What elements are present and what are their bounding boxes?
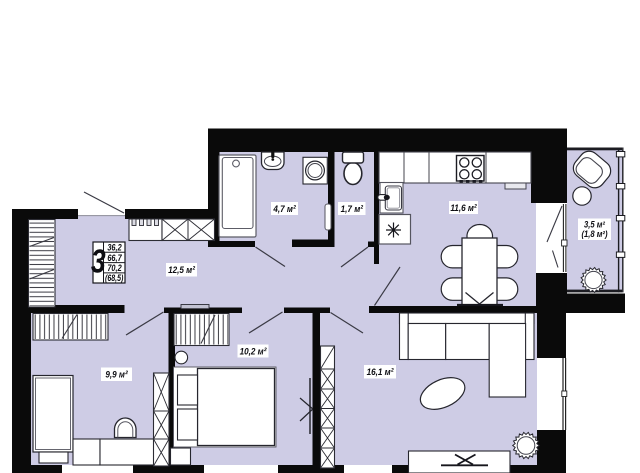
svg-text:16,1 м²: 16,1 м² bbox=[367, 366, 395, 377]
svg-text:(1,8 м²): (1,8 м²) bbox=[581, 229, 607, 240]
svg-text:70,2: 70,2 bbox=[107, 264, 122, 274]
svg-text:4,7 м²: 4,7 м² bbox=[272, 203, 296, 214]
svg-text:36,2: 36,2 bbox=[107, 243, 122, 253]
svg-text:(68,5): (68,5) bbox=[105, 273, 124, 283]
svg-text:66,7: 66,7 bbox=[107, 253, 122, 263]
svg-text:10,2 м²: 10,2 м² bbox=[240, 346, 268, 357]
svg-text:3: 3 bbox=[91, 244, 106, 280]
svg-text:11,6 м²: 11,6 м² bbox=[450, 202, 477, 213]
svg-text:9,9 м²: 9,9 м² bbox=[105, 369, 128, 380]
svg-text:12,5 м²: 12,5 м² bbox=[168, 265, 196, 276]
svg-text:1,7 м²: 1,7 м² bbox=[341, 203, 364, 214]
